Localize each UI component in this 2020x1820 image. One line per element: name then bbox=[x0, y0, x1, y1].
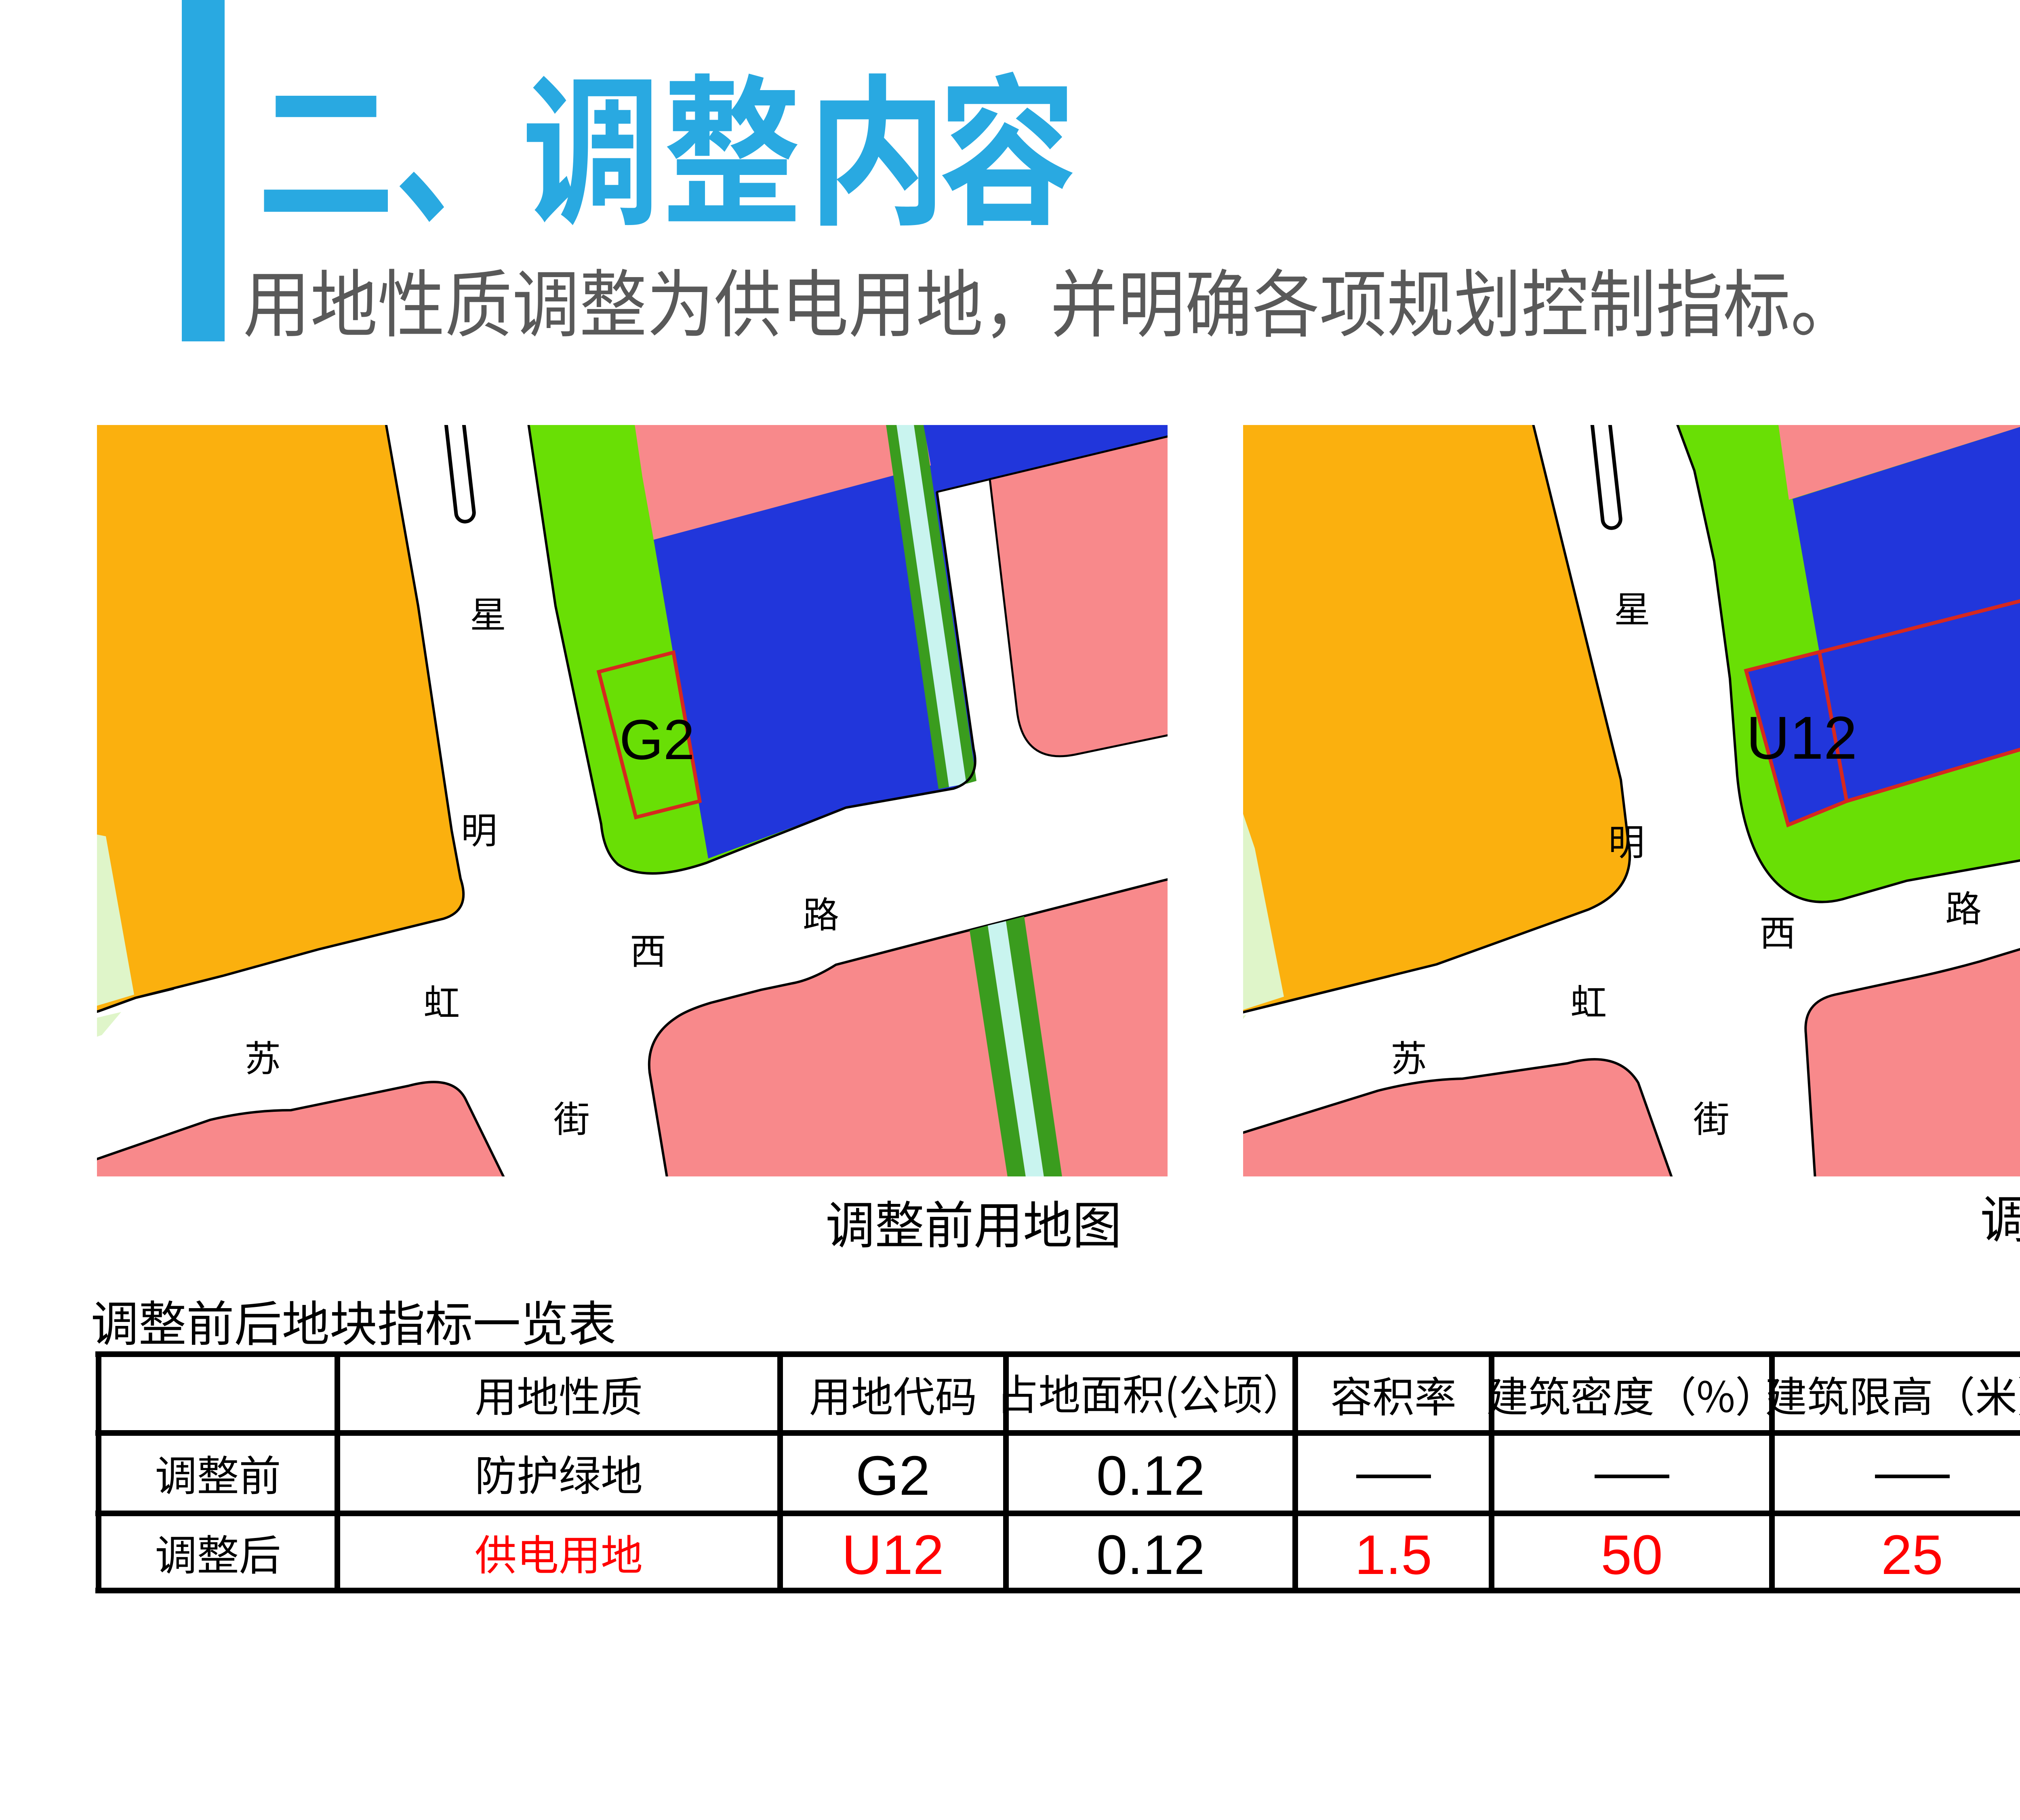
svg-text:G2: G2 bbox=[619, 708, 695, 771]
svg-text:0.12: 0.12 bbox=[1096, 1445, 1205, 1507]
svg-text:U12: U12 bbox=[1746, 704, 1857, 772]
svg-text:0.12: 0.12 bbox=[1096, 1524, 1205, 1586]
svg-text:1.5: 1.5 bbox=[1355, 1524, 1432, 1586]
svg-text:25: 25 bbox=[1881, 1524, 1943, 1586]
svg-text:U12: U12 bbox=[842, 1524, 944, 1586]
svg-text:50: 50 bbox=[1601, 1524, 1663, 1586]
svg-text:G2: G2 bbox=[856, 1445, 930, 1507]
